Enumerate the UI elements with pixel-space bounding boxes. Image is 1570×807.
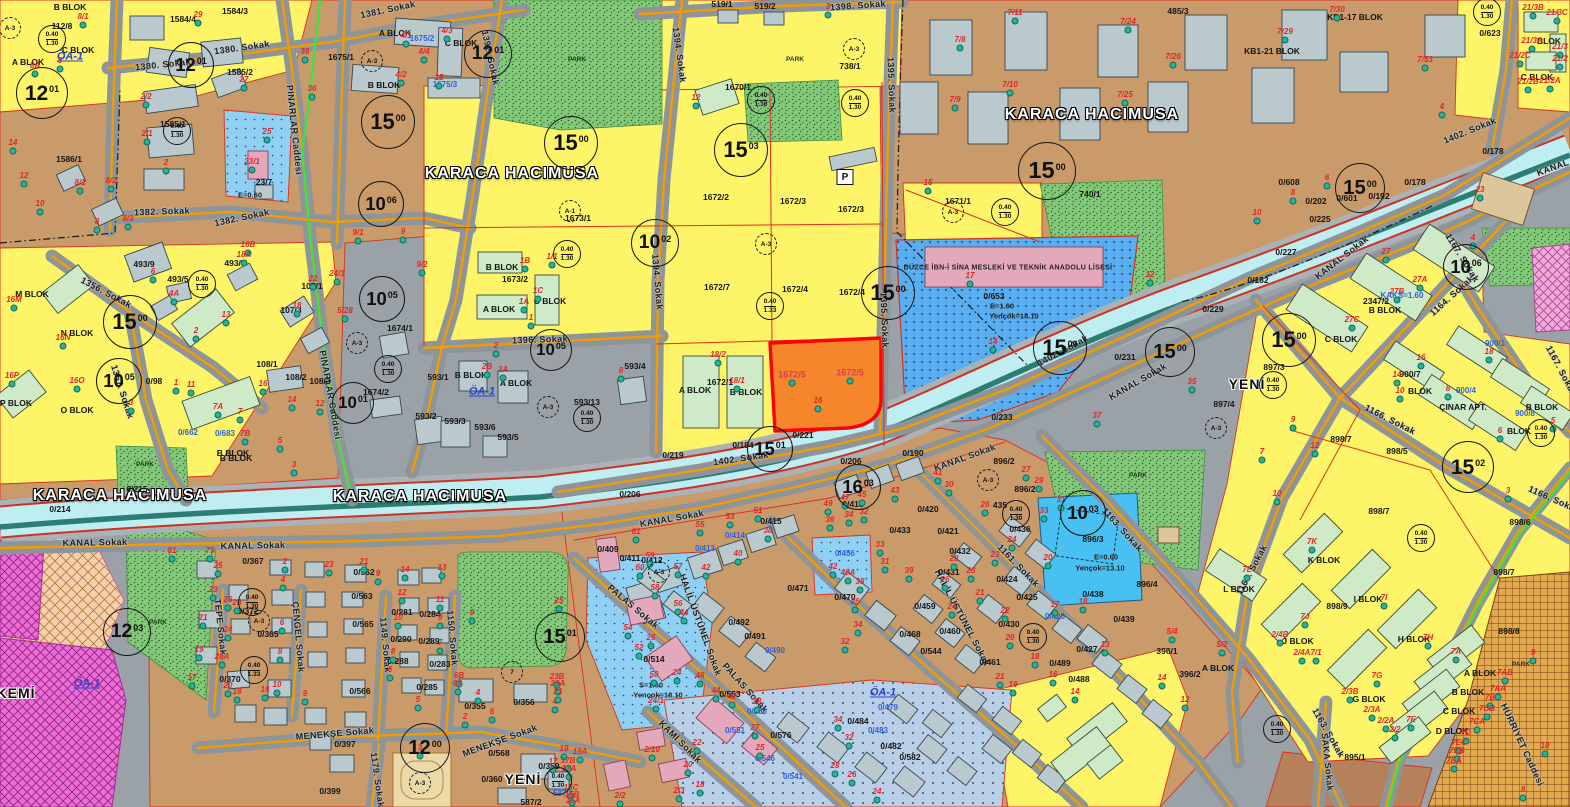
point-number-label: 23/1 <box>244 158 260 166</box>
point-number-label: 8 <box>58 57 62 65</box>
point-number-label: 21/2B <box>1517 78 1538 86</box>
point-number-label: 7I <box>1381 594 1388 602</box>
survey-point-marker <box>754 707 761 714</box>
point-number-label: 19 <box>1009 681 1018 689</box>
parcel-label: 0/360 <box>481 775 502 784</box>
point-number-label: 6 <box>1498 427 1502 435</box>
parcel-label: B BLOK <box>486 263 519 272</box>
parcel-label: 896/2 <box>993 457 1014 466</box>
parcel-label: 1584/4 <box>170 15 196 24</box>
parcel-label: 0/582 <box>899 753 920 762</box>
parcel-label: B BLOK <box>54 3 87 12</box>
survey-point-marker <box>493 351 500 358</box>
parcel-label: B BLOK <box>368 81 401 90</box>
survey-point-marker <box>188 390 195 397</box>
parcel-label: 0/356 <box>513 698 534 707</box>
survey-point-marker <box>1009 545 1016 552</box>
point-number-label: 58 <box>651 584 660 592</box>
parcel-label: P BLOK <box>0 399 32 408</box>
point-number-label: 2/4B <box>1272 631 1289 639</box>
point-number-label: 20 <box>224 682 233 690</box>
survey-point-marker <box>942 585 949 592</box>
parcel-label: 519/1 <box>711 0 732 8</box>
district-label: YENİ <box>505 772 542 786</box>
point-number-label: 14 <box>9 139 18 147</box>
survey-point-marker <box>282 567 289 574</box>
street-label: 1382. Sokak <box>214 208 271 228</box>
street-label: 1398. Sokak <box>830 0 886 12</box>
parcel-label: 1673/2 <box>502 275 528 284</box>
building-type-circle: A-3 <box>648 561 670 583</box>
cadastral-map-canvas[interactable]: KARACA HACIMUSAKARACA HACIMUSAKARACA HAC… <box>0 0 1570 807</box>
parcel-label: 0/541 <box>783 773 803 781</box>
point-number-label: 24 <box>1008 536 1017 544</box>
zone-number-circle: 1603 <box>835 464 881 510</box>
parcel-label: 900/8 <box>1515 410 1535 418</box>
building-ratio-circle: 0.401.30 <box>374 355 402 383</box>
building-ratio-circle: 0.401.30 <box>188 270 216 298</box>
survey-point-marker <box>395 623 402 630</box>
parcel-label: B BLOK <box>1369 306 1402 315</box>
survey-point-marker <box>752 733 759 740</box>
survey-point-marker <box>555 697 562 704</box>
point-number-label: 7H <box>1423 634 1433 642</box>
parcel-label: 898/5 <box>1386 447 1407 456</box>
survey-point-marker <box>849 780 856 787</box>
survey-point-marker <box>1334 15 1341 22</box>
point-number-label: 48 <box>696 672 705 680</box>
point-number-label: 44 <box>680 609 689 617</box>
survey-point-marker <box>291 470 298 477</box>
survey-point-marker <box>847 378 854 385</box>
survey-point-marker <box>439 573 446 580</box>
street-label: HÜRRİYET Caddesi <box>1499 702 1545 787</box>
point-number-label: 7B <box>1485 694 1495 702</box>
parcel-label: 0/420 <box>917 505 938 514</box>
point-number-label: 42 <box>728 693 737 701</box>
parcel-label: 0/233 <box>991 413 1012 422</box>
survey-point-marker <box>982 510 989 517</box>
point-number-label: 25 <box>263 128 272 136</box>
survey-point-marker <box>1417 285 1424 292</box>
survey-point-marker <box>444 36 451 43</box>
building-type-circle: A-3 <box>409 772 431 794</box>
survey-point-marker <box>1445 394 1452 401</box>
point-number-label: 24/1 <box>648 697 664 705</box>
parcel-label: 0/283 <box>429 660 450 669</box>
survey-point-marker <box>274 690 281 697</box>
survey-point-marker <box>949 612 956 619</box>
point-number-label: 16 <box>259 380 268 388</box>
parcel-label: 0/229 <box>1202 305 1223 314</box>
point-number-label: 51 <box>754 507 763 515</box>
survey-point-marker <box>215 412 222 419</box>
parcel-label: E=0.60 <box>1094 553 1118 561</box>
point-number-label: 10 <box>36 200 45 208</box>
point-number-label: 26 <box>224 596 233 604</box>
survey-point-marker <box>237 417 244 424</box>
street-label: 1381. Sokak <box>360 0 417 20</box>
point-number-label: 22 <box>693 739 702 747</box>
survey-point-marker <box>1381 603 1388 610</box>
zone-number-circle: 1006 <box>358 181 404 227</box>
parcel-label: 0/409 <box>597 545 618 554</box>
survey-point-marker <box>852 607 859 614</box>
parcel-label: E=0.60 <box>238 191 262 199</box>
point-number-label: 18B <box>241 241 256 249</box>
survey-point-marker <box>693 103 700 110</box>
survey-point-marker <box>874 797 881 804</box>
survey-point-marker <box>845 578 852 585</box>
survey-point-marker <box>1282 37 1289 44</box>
survey-point-marker <box>977 598 984 605</box>
survey-point-marker <box>1290 425 1297 432</box>
survey-point-marker <box>633 537 640 544</box>
survey-point-marker <box>419 270 426 277</box>
zone-number-circle: 1500 <box>1033 321 1087 375</box>
survey-point-marker <box>128 408 135 415</box>
parcel-label: 593/1 <box>427 373 448 382</box>
point-number-label: 15 <box>435 74 444 82</box>
survey-point-marker <box>1072 697 1079 704</box>
point-number-label: 55 <box>696 521 705 529</box>
point-number-label: 1C <box>533 287 543 295</box>
building-ratio-circle: 0.401.30 <box>1263 715 1291 743</box>
point-number-label: 38 <box>301 48 310 56</box>
zone-number-circle: 1501 <box>747 426 793 472</box>
parcel-label: 0/227 <box>1275 248 1296 257</box>
survey-point-marker <box>1290 198 1297 205</box>
parcel-label: 0/178 <box>1404 178 1425 187</box>
survey-point-marker <box>649 755 656 762</box>
survey-point-marker <box>143 102 150 109</box>
survey-point-marker <box>990 347 997 354</box>
parcel-label: C BLOK <box>1443 707 1476 716</box>
building-type-circle: A-3 <box>755 233 777 255</box>
point-number-label: 5 <box>278 437 282 445</box>
survey-point-marker <box>789 380 796 387</box>
point-number-label: 37 <box>1093 412 1102 420</box>
building-ratio-circle: 0.401.33 <box>240 656 268 684</box>
point-number-label: 42 <box>702 564 711 572</box>
survey-point-marker <box>1369 715 1376 722</box>
street-label: 1163. Sokak <box>1100 506 1144 553</box>
parcel-label: 593/5 <box>497 433 518 442</box>
survey-point-marker <box>1219 650 1226 657</box>
point-number-label: 26 <box>981 501 990 509</box>
parcel-label: 0/289 <box>418 637 439 646</box>
survey-point-marker <box>1302 622 1309 629</box>
survey-point-marker <box>967 281 974 288</box>
survey-point-marker <box>892 496 899 503</box>
survey-point-marker <box>207 556 214 563</box>
point-number-label: 36 <box>826 516 835 524</box>
parcel-label: E=1.60 <box>990 302 1014 310</box>
zone-number-circle: 1500 <box>861 266 915 320</box>
survey-point-marker <box>1299 658 1306 665</box>
point-number-label: 8 <box>391 648 395 656</box>
point-number-label: 18 <box>233 688 242 696</box>
survey-point-marker <box>1189 387 1196 394</box>
survey-point-marker <box>1313 658 1320 665</box>
point-number-label: 4A <box>169 290 179 298</box>
survey-point-marker <box>289 405 296 412</box>
parcel-label: 0/367 <box>242 557 263 566</box>
survey-point-marker <box>1010 690 1017 697</box>
point-number-label: 7/10 <box>1002 81 1018 89</box>
building-ratio-circle: 0.401.30 <box>1019 623 1047 651</box>
survey-point-marker <box>215 571 222 578</box>
point-number-label: 16 <box>814 397 823 405</box>
point-number-label: 8 <box>619 367 623 375</box>
survey-point-marker <box>697 790 704 797</box>
survey-point-marker <box>703 573 710 580</box>
survey-point-marker <box>1451 766 1458 773</box>
survey-point-marker <box>415 705 422 712</box>
point-number-label: 17 <box>1051 601 1060 609</box>
selected-parcel-label: 1672/5 <box>778 371 806 380</box>
zone-number-circle: 1005 <box>359 276 405 322</box>
survey-point-marker <box>952 105 959 112</box>
point-number-label: 27 <box>1022 466 1031 474</box>
survey-point-marker <box>436 83 443 90</box>
parcel-label: 108/1 <box>256 360 277 369</box>
parcel-label: A BLOK <box>679 386 711 395</box>
point-number-label: 12 <box>316 400 325 408</box>
survey-point-marker <box>1244 575 1251 582</box>
map-labels-layer: KARACA HACIMUSAKARACA HACIMUSAKARACA HAC… <box>0 0 1570 807</box>
point-number-label: 18 <box>1079 598 1088 606</box>
point-number-label: 59 <box>646 552 655 560</box>
survey-point-marker <box>1125 27 1132 34</box>
point-number-label: 1 <box>529 314 533 322</box>
survey-point-marker <box>997 682 1004 689</box>
point-number-label: 16 <box>1049 671 1058 679</box>
point-number-label: 24 <box>673 669 682 677</box>
point-number-label: 7L <box>1242 566 1251 574</box>
zone-number-circle: 1500 <box>544 116 598 170</box>
parcel-label: 0/484 <box>847 717 868 726</box>
survey-point-marker <box>225 691 232 698</box>
survey-point-marker <box>1392 735 1399 742</box>
parcel-label: 0/460 <box>939 627 960 636</box>
survey-point-marker <box>1170 62 1177 69</box>
parcel-label: 0/202 <box>1305 197 1326 206</box>
point-number-label: 4 <box>281 576 285 584</box>
point-number-label: 32 <box>841 638 850 646</box>
parcel-label: A BLOK <box>1202 664 1234 673</box>
zone-number-circle: 1500 <box>1262 313 1316 367</box>
building-type-circle: A-3 <box>248 610 270 632</box>
survey-point-marker <box>1007 643 1014 650</box>
parcel-label: ÖA-1 <box>469 387 495 398</box>
point-number-label: 29 <box>194 11 203 19</box>
survey-point-marker <box>342 316 349 323</box>
survey-point-marker <box>957 45 964 52</box>
street-label: PINARLAR Caddesi <box>285 85 303 176</box>
parcel-label: ÖA-1 <box>74 679 100 690</box>
parcel-label: 0/215 <box>126 485 147 494</box>
parcel-label: 1672/7 <box>704 283 730 292</box>
point-number-label: 6 <box>151 268 155 276</box>
survey-point-marker <box>674 678 681 685</box>
survey-point-marker <box>1530 13 1537 20</box>
zone-number-circle: 1005 <box>530 329 572 371</box>
parcel-label: 0/411 <box>620 554 641 563</box>
point-number-label: 38 <box>856 578 865 586</box>
point-number-label: 27C <box>1345 316 1360 324</box>
parcel-label: 0/397 <box>334 740 355 749</box>
survey-point-marker <box>827 525 834 532</box>
survey-point-marker <box>1169 637 1176 644</box>
point-number-label: 7/30 <box>1329 6 1345 14</box>
zone-number-circle: 1005 <box>96 358 142 404</box>
parcel-label: 0/566 <box>349 687 370 696</box>
parcel-label: 1672/2 <box>703 193 729 202</box>
point-number-label: 18A <box>237 251 252 259</box>
parcel-label: 898/9 <box>1326 602 1347 611</box>
street-label: 1150. Sokak <box>445 610 459 666</box>
parcel-label: 0/421 <box>937 527 958 536</box>
survey-point-marker <box>713 696 720 703</box>
survey-point-marker <box>11 305 18 312</box>
parcel-label: 0/413 <box>695 545 715 553</box>
survey-point-marker <box>1312 451 1319 458</box>
zone-number-circle: 1503 <box>714 123 768 177</box>
point-number-label: 2/2 <box>614 792 625 800</box>
survey-point-marker <box>1349 325 1356 332</box>
district-label: KARACA HACIMUSA <box>333 489 507 505</box>
point-number-label: 14 <box>1158 674 1167 682</box>
survey-point-marker <box>1383 257 1390 264</box>
parcel-label: 0/653 <box>983 292 1004 301</box>
survey-point-marker <box>1486 357 1493 364</box>
parcel-label: 898/8 <box>1498 627 1519 636</box>
parcel-label: 485/3 <box>1167 7 1188 16</box>
survey-point-marker <box>21 181 28 188</box>
parcel-label: 1674/1 <box>387 324 413 333</box>
point-number-label: 14 <box>1393 371 1402 379</box>
survey-point-marker <box>277 657 284 664</box>
point-number-label: 9 <box>1531 649 1535 657</box>
point-number-label: 24/1 <box>329 270 345 278</box>
point-number-label: 16 <box>1417 354 1426 362</box>
point-number-label: 2/2 <box>140 93 151 101</box>
point-number-label: 23 <box>1476 186 1485 194</box>
parcel-label: B BLOK <box>1452 688 1485 697</box>
building-type-circle: 7 <box>501 661 523 683</box>
survey-point-marker <box>968 576 975 583</box>
parcel-label: 0/483 <box>868 727 888 735</box>
survey-point-marker <box>249 167 256 174</box>
point-number-label: 34 <box>834 716 843 724</box>
survey-point-marker <box>846 520 853 527</box>
survey-point-marker <box>1012 18 1019 25</box>
survey-point-marker <box>1032 662 1039 669</box>
parcel-label: 0/488 <box>1068 675 1089 684</box>
survey-point-marker <box>200 623 207 630</box>
parcel-label: G BLOK <box>1352 695 1385 704</box>
point-number-label: 56 <box>674 600 683 608</box>
parcel-label: PARK <box>568 57 586 64</box>
parcel-label: 0/514 <box>643 655 664 664</box>
point-number-label: 12 <box>20 172 29 180</box>
point-number-label: 2 <box>164 159 168 167</box>
parcel-label: 1672/4 <box>782 285 808 294</box>
parcel-label: 895/1 <box>1344 753 1365 762</box>
point-number-label: 18 <box>696 781 705 789</box>
building-ratio-circle: 0.401.30 <box>1527 419 1555 447</box>
point-number-label: 6 <box>388 666 392 674</box>
building-type-circle: A-3 <box>977 469 999 491</box>
zone-number-circle: 1201 <box>464 30 512 78</box>
parcel-label: 0/433 <box>889 526 910 535</box>
point-number-label: 21/3C <box>1546 9 1567 17</box>
building-ratio-circle: 0.401.30 <box>1259 371 1287 399</box>
survey-point-marker <box>697 530 704 537</box>
survey-point-marker <box>210 595 217 602</box>
point-number-label: 38 <box>753 698 762 706</box>
point-number-label: 10 <box>1541 742 1550 750</box>
parcel-label: 0/178 <box>1482 147 1503 156</box>
point-number-label: 26 <box>941 576 950 584</box>
survey-point-marker <box>60 343 67 350</box>
parcel-label: 898/7 <box>1330 435 1351 444</box>
survey-point-marker <box>241 85 248 92</box>
point-number-label: 17 <box>966 272 975 280</box>
point-number-label: 7B <box>240 430 250 438</box>
point-number-label: 4 <box>1440 103 1444 111</box>
district-label: KEMİ <box>0 686 36 700</box>
point-number-label: 36 <box>851 598 860 606</box>
survey-point-marker <box>1397 396 1404 403</box>
survey-point-marker <box>225 635 232 642</box>
survey-point-marker <box>262 695 269 702</box>
survey-point-marker <box>1497 436 1504 443</box>
parcel-label: 0/489 <box>1049 659 1070 668</box>
point-number-label: 21 <box>976 589 985 597</box>
point-number-label: 3 <box>292 461 296 469</box>
point-number-label: 2 <box>194 327 198 335</box>
survey-point-marker <box>577 757 584 764</box>
point-number-label: 5 <box>416 696 420 704</box>
point-number-label: 16P <box>5 372 19 380</box>
survey-point-marker <box>225 605 232 612</box>
point-number-label: 2 <box>494 342 498 350</box>
point-number-label: 41 <box>934 469 943 477</box>
point-number-label: 23 <box>991 551 1000 559</box>
point-number-label: 2/2 <box>1389 726 1400 734</box>
survey-point-marker <box>697 681 704 688</box>
point-number-label: 34 <box>854 621 863 629</box>
survey-point-marker <box>94 227 101 234</box>
survey-point-marker <box>1418 363 1425 370</box>
point-number-label: 6A <box>453 680 463 688</box>
parcel-label: 0/219 <box>662 451 683 460</box>
survey-point-marker <box>1517 61 1524 68</box>
parcel-label: 593/2 <box>415 412 436 421</box>
point-number-label: 21/3A <box>1521 37 1542 45</box>
point-number-label: 29 <box>1035 477 1044 485</box>
point-number-label: 42 <box>829 563 838 571</box>
survey-point-marker <box>757 753 764 760</box>
survey-point-marker <box>375 579 382 586</box>
point-number-label: 19 <box>195 646 204 654</box>
parcel-label: PARK <box>1129 473 1147 480</box>
survey-point-marker <box>223 320 230 327</box>
point-number-label: 12 <box>1146 271 1155 279</box>
survey-point-marker <box>1274 499 1281 506</box>
